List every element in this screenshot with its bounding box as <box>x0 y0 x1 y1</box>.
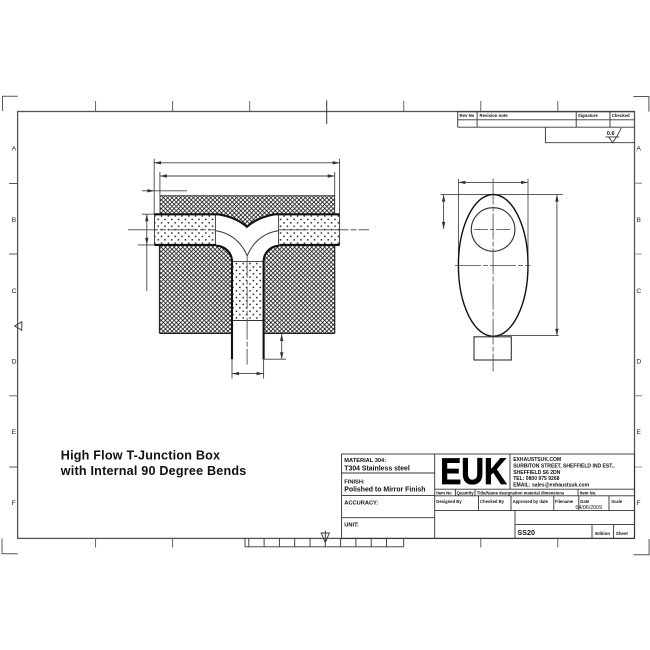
svg-text:E: E <box>636 429 641 436</box>
svg-text:B: B <box>636 217 641 224</box>
svg-text:Filename: Filename <box>555 499 574 504</box>
svg-text:E: E <box>12 429 17 436</box>
svg-text:0.6: 0.6 <box>607 131 615 137</box>
svg-text:MATERIAL 304:: MATERIAL 304: <box>344 458 386 464</box>
svg-text:F: F <box>636 500 640 507</box>
svg-text:B: B <box>12 217 17 224</box>
svg-text:EXHAUSTSUK.COM: EXHAUSTSUK.COM <box>513 457 561 463</box>
svg-text:EUK: EUK <box>440 450 507 492</box>
svg-text:Sheet: Sheet <box>616 531 628 536</box>
svg-text:C: C <box>12 288 17 295</box>
svg-text:04/06/2009: 04/06/2009 <box>576 505 603 511</box>
svg-text:Edition: Edition <box>595 531 610 536</box>
svg-text:Designed By: Designed By <box>436 499 462 504</box>
svg-text:D: D <box>12 358 17 365</box>
svg-text:A: A <box>12 145 17 152</box>
svg-text:D: D <box>636 358 641 365</box>
svg-text:SHEFFIELD S6 2DN: SHEFFIELD S6 2DN <box>513 470 560 476</box>
svg-text:Title/Name designation materia: Title/Name designation material dimensio… <box>477 490 565 495</box>
svg-text:C: C <box>636 288 641 295</box>
svg-text:Rev No: Rev No <box>460 113 475 118</box>
svg-text:with Internal 90 Degree Bends: with Internal 90 Degree Bends <box>60 464 247 478</box>
svg-text:Date: Date <box>580 499 590 504</box>
svg-text:Item No.: Item No. <box>580 490 597 495</box>
svg-text:Approved by date: Approved by date <box>513 499 549 504</box>
svg-text:Item No: Item No <box>436 490 452 495</box>
svg-text:TEL: 0800 975 9268: TEL: 0800 975 9268 <box>513 476 559 482</box>
svg-text:ACCURACY:: ACCURACY: <box>344 501 378 507</box>
svg-text:A: A <box>636 145 641 152</box>
svg-text:Revision note: Revision note <box>480 113 509 118</box>
svg-text:SS20: SS20 <box>517 528 535 537</box>
svg-text:T304 Stainless steel: T304 Stainless steel <box>344 466 410 473</box>
svg-text:SURBITON STREET, SHEFFIELD IND: SURBITON STREET, SHEFFIELD IND EST., <box>513 463 615 469</box>
svg-text:F: F <box>12 500 16 507</box>
svg-text:EMAIL: sales@exhaustsuk.com: EMAIL: sales@exhaustsuk.com <box>513 483 589 489</box>
svg-text:FINISH:: FINISH: <box>344 479 365 485</box>
svg-text:UNIT:: UNIT: <box>344 523 359 529</box>
svg-text:Quantity: Quantity <box>457 490 475 495</box>
svg-text:Scale: Scale <box>611 499 623 504</box>
svg-text:Polished to Mirror Finish: Polished to Mirror Finish <box>344 487 425 494</box>
svg-text:High Flow T-Junction Box: High Flow T-Junction Box <box>61 448 220 462</box>
svg-text:Checked By: Checked By <box>480 499 505 504</box>
svg-text:Signature: Signature <box>578 113 598 118</box>
svg-text:Checked: Checked <box>612 113 630 118</box>
